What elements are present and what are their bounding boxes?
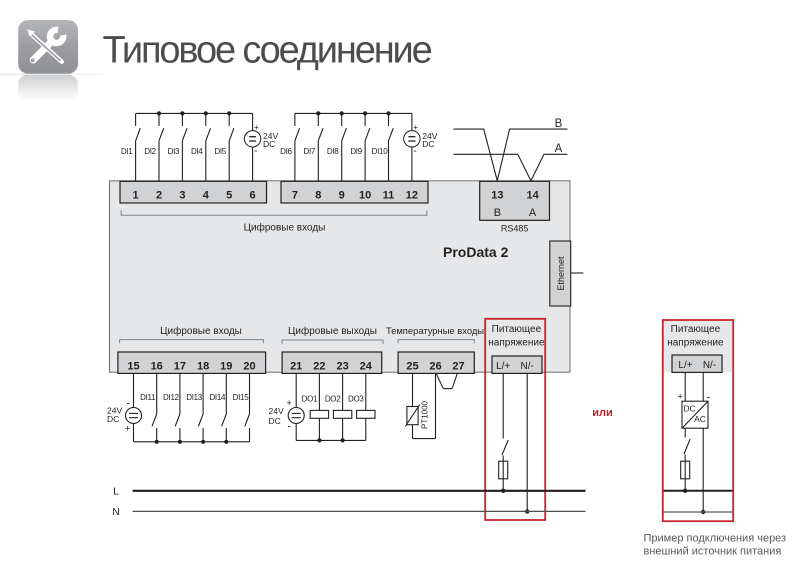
svg-text:N: N: [112, 506, 120, 518]
svg-text:2: 2: [156, 190, 162, 202]
svg-text:DI10: DI10: [372, 147, 389, 156]
svg-text:DI6: DI6: [280, 147, 292, 156]
svg-text:напряжение: напряжение: [488, 338, 545, 349]
svg-text:DI9: DI9: [350, 147, 362, 156]
svg-text:DI13: DI13: [186, 393, 203, 402]
svg-text:9: 9: [339, 190, 345, 202]
svg-text:8: 8: [315, 190, 321, 202]
svg-text:DC: DC: [683, 404, 695, 414]
svg-text:15: 15: [127, 360, 139, 372]
svg-text:24V: 24V: [269, 406, 284, 416]
svg-text:N/-: N/-: [703, 360, 716, 371]
svg-text:DI12: DI12: [163, 393, 180, 402]
svg-text:Ethernet: Ethernet: [556, 256, 566, 291]
svg-text:Питающее: Питающее: [492, 324, 542, 335]
svg-text:DI11: DI11: [140, 393, 156, 402]
svg-text:DI1: DI1: [121, 147, 133, 156]
svg-text:напряжение: напряжение: [667, 338, 724, 349]
svg-text:L: L: [113, 485, 119, 497]
svg-text:A: A: [555, 143, 563, 155]
svg-text:DC: DC: [269, 416, 281, 426]
svg-text:+: +: [125, 424, 131, 435]
svg-text:+: +: [413, 122, 418, 132]
svg-text:Цифровые входы: Цифровые входы: [244, 221, 326, 233]
svg-text:10: 10: [359, 190, 371, 202]
svg-text:внешний источник питания: внешний источник питания: [644, 546, 782, 558]
svg-text:DI4: DI4: [191, 147, 203, 156]
svg-text:5: 5: [226, 190, 232, 202]
svg-text:PT1000: PT1000: [421, 400, 430, 429]
svg-text:AC: AC: [694, 414, 706, 424]
svg-text:RS485: RS485: [501, 223, 529, 233]
svg-text:DC: DC: [263, 139, 275, 149]
svg-text:L/+: L/+: [678, 360, 692, 371]
svg-text:22: 22: [313, 360, 325, 372]
svg-text:7: 7: [292, 190, 298, 202]
svg-text:DI5: DI5: [214, 147, 226, 156]
svg-text:20: 20: [243, 360, 255, 372]
svg-text:B: B: [555, 118, 563, 130]
svg-text:A: A: [529, 207, 537, 219]
svg-text:Цифровые входы: Цифровые входы: [160, 325, 242, 337]
svg-text:16: 16: [151, 360, 163, 372]
svg-text:1: 1: [133, 190, 139, 202]
svg-text:12: 12: [406, 190, 418, 202]
svg-text:Питающее: Питающее: [671, 324, 721, 335]
svg-text:DC: DC: [107, 414, 119, 424]
svg-text:ProData 2: ProData 2: [443, 244, 509, 260]
svg-text:DI2: DI2: [144, 147, 156, 156]
svg-text:или: или: [592, 407, 613, 419]
svg-text:13: 13: [491, 190, 503, 202]
svg-text:19: 19: [220, 360, 232, 372]
svg-text:14: 14: [526, 190, 539, 202]
svg-text:Типовое соединение: Типовое соединение: [103, 30, 432, 72]
svg-text:DC: DC: [422, 139, 434, 149]
svg-text:18: 18: [197, 360, 209, 372]
svg-text:DO2: DO2: [325, 395, 341, 404]
svg-text:25: 25: [406, 360, 418, 372]
svg-text:24: 24: [360, 360, 373, 372]
svg-text:+: +: [254, 122, 259, 132]
svg-text:Температурные входы: Температурные входы: [386, 325, 484, 336]
svg-text:4: 4: [203, 190, 210, 202]
svg-text:DI8: DI8: [327, 147, 339, 156]
svg-text:3: 3: [179, 190, 185, 202]
svg-text:Цифровые выходы: Цифровые выходы: [288, 325, 377, 337]
svg-text:6: 6: [250, 190, 256, 202]
svg-text:23: 23: [336, 360, 348, 372]
svg-text:DO3: DO3: [348, 395, 364, 404]
svg-text:-: -: [126, 398, 130, 410]
svg-text:Пример подключения через: Пример подключения через: [644, 532, 787, 544]
svg-text:17: 17: [174, 360, 186, 372]
svg-text:DI15: DI15: [233, 393, 250, 402]
svg-text:-: -: [254, 146, 257, 157]
svg-text:DO1: DO1: [302, 395, 318, 404]
svg-text:11: 11: [383, 190, 395, 202]
svg-text:N/-: N/-: [521, 361, 534, 372]
svg-text:27: 27: [452, 360, 464, 372]
svg-text:21: 21: [290, 360, 302, 372]
svg-text:DI14: DI14: [209, 393, 226, 402]
svg-text:DI7: DI7: [304, 147, 316, 156]
svg-text:-: -: [288, 422, 291, 433]
svg-text:+: +: [286, 398, 292, 409]
svg-text:-: -: [413, 146, 416, 157]
svg-text:26: 26: [429, 360, 441, 372]
svg-text:DI3: DI3: [168, 147, 180, 156]
svg-text:L/+: L/+: [496, 361, 510, 372]
svg-text:B: B: [494, 207, 501, 219]
